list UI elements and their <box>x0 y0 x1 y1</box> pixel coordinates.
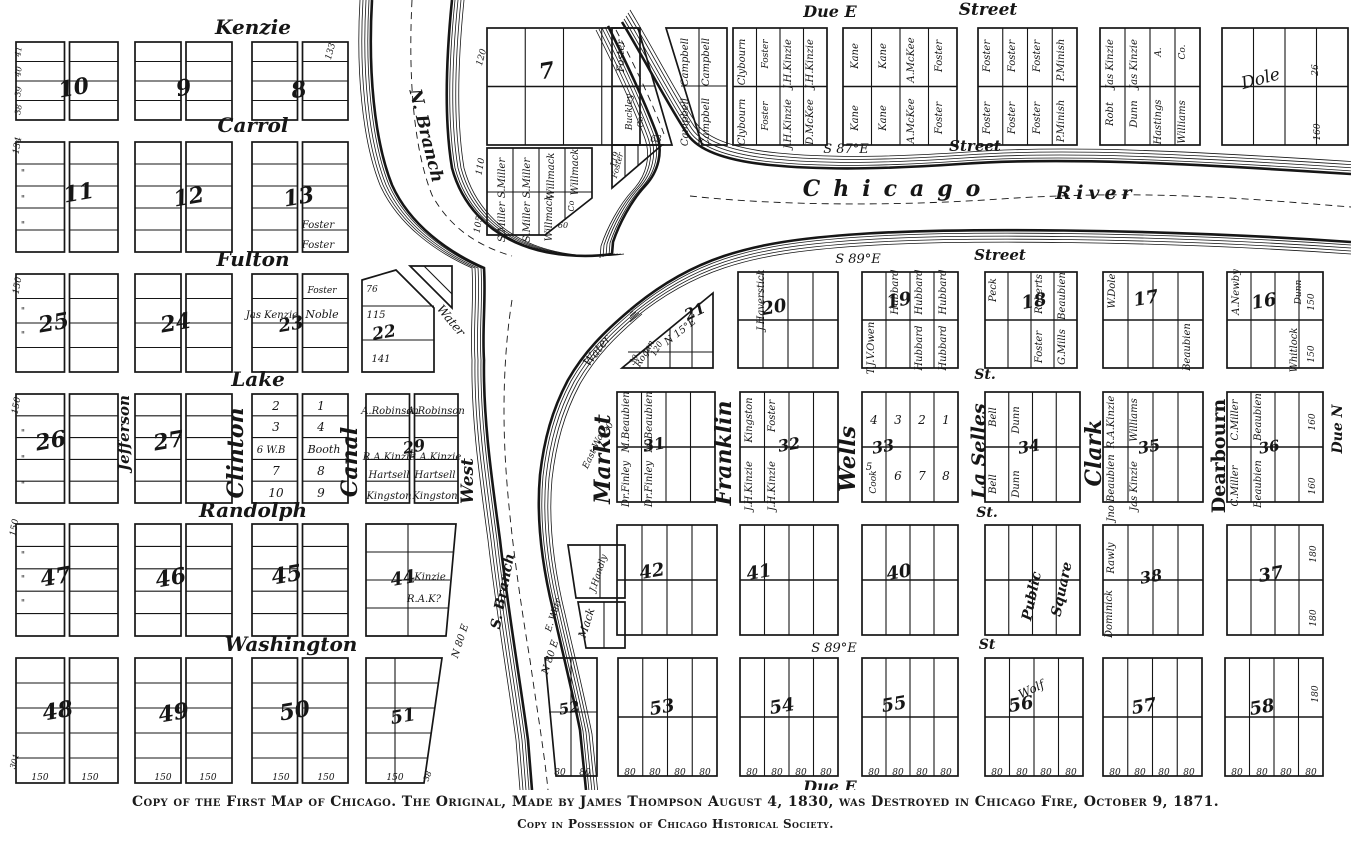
dimension-label: 150 <box>272 773 289 783</box>
lot-name: Co. <box>1178 44 1188 59</box>
block-number: 22 <box>370 321 398 345</box>
dimension-label: 133 <box>324 42 338 61</box>
street-label: Fulton <box>215 247 289 271</box>
bearing-label: S 89°E <box>811 641 857 656</box>
lot-name: D.McKee <box>805 99 816 146</box>
lot-name: Kinzie <box>413 572 446 583</box>
lot-name: Foster <box>1034 330 1045 364</box>
lot-name: J.H.Kinzie <box>805 39 816 91</box>
street-label: Lake <box>230 367 285 391</box>
lot-name: Dole <box>1238 64 1282 94</box>
dimension-label: 180 <box>1309 545 1319 562</box>
street-label: Wells <box>835 426 861 492</box>
lot-name: Hubbard <box>914 325 925 371</box>
block-number: 17 <box>1132 286 1161 311</box>
lot-name: M.Beaubien <box>621 391 632 453</box>
street-label: West <box>458 458 478 504</box>
dimension-label: 150 <box>154 773 171 783</box>
lot-number: 63 <box>650 135 662 145</box>
dimension-label: 134 <box>12 136 25 155</box>
dimension-label: 110 <box>475 157 488 176</box>
dimension-label: 40 <box>13 66 24 79</box>
dimension-label: 60 <box>558 221 568 230</box>
dimension-label: " <box>21 551 25 561</box>
dimension-label: 150 <box>81 773 98 783</box>
block-number: 25 <box>35 308 71 339</box>
lot-number: 8 <box>942 469 950 483</box>
block-outline <box>186 524 232 636</box>
dimension-label: 76 <box>366 285 378 295</box>
lot-name: Kane <box>878 43 889 70</box>
lot-name: Dunn <box>1129 100 1140 128</box>
lot-name: Hubbard <box>938 325 949 371</box>
dimension-label: 80 <box>554 768 566 778</box>
lot-name: A.McKee <box>906 98 917 144</box>
dimension-label: 80 <box>674 768 686 778</box>
lot-name: J.H.Kinzie <box>744 461 755 513</box>
block-number: 40 <box>885 560 914 585</box>
block-number: 35 <box>1136 435 1161 458</box>
dimension-label: 80 <box>771 768 783 778</box>
bearing-label: S 87°E <box>823 142 869 157</box>
lot-name: Foster <box>982 101 993 135</box>
block-number: 47 <box>38 562 73 593</box>
block-number: 52 <box>557 697 581 718</box>
lot-name: Clybourn <box>737 99 748 146</box>
lot-name: Beaubien <box>1253 460 1264 509</box>
river-label: S. Branch <box>488 552 518 630</box>
block-number: 34 <box>1016 435 1041 458</box>
street-label: Jefferson <box>115 395 133 474</box>
block-number: 58 <box>1248 695 1277 720</box>
river-bank <box>362 0 523 790</box>
lot-name: J.Haverstick <box>756 269 767 332</box>
lot-name: Willmack <box>546 153 557 200</box>
lot-name: Bell <box>988 407 999 428</box>
map-canvas: KenzieCarrolFultonLakeRandolphWashington… <box>0 0 1351 790</box>
block-number: 44 <box>389 566 417 591</box>
block-outline <box>70 394 119 503</box>
street-label: Clinton <box>223 407 249 498</box>
lot-name: Foster <box>761 101 771 132</box>
block-number: 41 <box>745 560 773 585</box>
dimension-label: 80 <box>746 768 758 778</box>
dimension-label: 80 <box>1040 768 1052 778</box>
block-number: 10 <box>56 73 91 104</box>
dimension-label: 150 <box>31 773 48 783</box>
lot-number: 7 <box>272 464 280 478</box>
lot-name: Foster <box>934 39 945 73</box>
street-marker: Street <box>949 137 1001 155</box>
lot-name: S.Miller <box>522 157 533 198</box>
street-marker: Due E <box>802 2 857 21</box>
lot-name: J.H.Kinzie <box>767 461 778 513</box>
lot-number: 8 <box>317 464 325 478</box>
block-number: 55 <box>880 692 908 717</box>
dimension-label: " <box>21 331 25 341</box>
lot-name: Kingston <box>744 397 755 443</box>
dimension-label: 160 <box>1313 123 1323 140</box>
dimension-label: 80 <box>795 768 807 778</box>
river-bank <box>365 0 526 790</box>
lot-name: Co <box>636 116 645 127</box>
block-number: 32 <box>776 433 801 456</box>
lot-name: C.Miller <box>1230 464 1241 506</box>
block-outline <box>70 658 119 783</box>
dimension-label: " <box>21 195 25 205</box>
dimension-label: 80 <box>940 768 952 778</box>
dimension-label: 80 <box>991 768 1003 778</box>
lot-number: 6 W.B <box>257 445 286 456</box>
dimension-label: 150 <box>1307 293 1317 310</box>
lot-name: J.H.Kinzie <box>783 99 794 151</box>
street-marker: St <box>979 637 996 653</box>
block-number: 27 <box>150 426 186 457</box>
block-number: 48 <box>40 696 75 727</box>
dimension-label: 26 <box>1311 64 1321 77</box>
lot-name: Dunn <box>1294 279 1304 305</box>
lot-name: Jas Kinzie <box>1105 39 1116 91</box>
lot-name: Dr.Finley <box>621 461 632 509</box>
dimension-label: " <box>21 575 25 585</box>
lot-name: Willmack <box>544 195 555 242</box>
lot-number: 10 <box>268 486 284 500</box>
dimension-label: 80 <box>1305 768 1317 778</box>
lot-name: Kingston <box>411 491 457 502</box>
dimension-label: " <box>21 221 25 231</box>
block-outline <box>303 524 349 636</box>
lot-name: Kane <box>850 105 861 132</box>
river-label: Chicago <box>803 176 994 202</box>
lot-name: Jno Beaubien <box>1106 454 1117 523</box>
lot-name: Hubbard <box>938 269 949 315</box>
lot-name: Willmack <box>570 149 581 196</box>
dimension-label: 150 <box>317 773 334 783</box>
dimension-label: 39 <box>13 86 24 98</box>
lot-number: 3 <box>894 413 902 427</box>
lot-name: T.J.V.Owen <box>866 322 877 375</box>
lot-name: Bell <box>988 474 999 495</box>
lot-number: 1 <box>317 399 325 413</box>
lot-name: R.A.Kinzie <box>408 452 462 463</box>
map-page: KenzieCarrolFultonLakeRandolphWashington… <box>0 0 1351 856</box>
lot-name: Foster <box>761 39 771 70</box>
river-centerline-dashed <box>690 195 1351 207</box>
lot-name: Williams <box>1129 398 1140 441</box>
lot-number: 4 <box>316 420 325 434</box>
lot-name: Hartsell <box>368 470 410 481</box>
block-number: 12 <box>171 182 206 213</box>
lot-name: C.Miller <box>1230 398 1241 440</box>
street-marker: Street <box>959 0 1018 20</box>
street-label: Randolph <box>198 498 307 522</box>
block-number: 16 <box>1250 289 1279 314</box>
dimension-label: 150 <box>11 396 24 415</box>
block-number: 49 <box>156 698 191 729</box>
block-number: 38 <box>1138 565 1163 588</box>
lot-number: 5 <box>866 462 872 473</box>
dimension-label: 301 <box>8 753 21 770</box>
lot-number: 4 <box>869 413 878 427</box>
lot-number: 7 <box>918 469 926 483</box>
dimension-label: 80 <box>1183 768 1195 778</box>
lot-name: G.Mills <box>1057 329 1068 365</box>
lot-name: Cook <box>869 470 879 493</box>
lot-line <box>424 266 452 294</box>
lot-name: Clybourn <box>737 39 748 86</box>
street-label: Carrol <box>218 113 289 137</box>
dimension-label: 80 <box>1280 768 1292 778</box>
block-number: 9 <box>174 74 194 102</box>
river-bank <box>545 312 636 790</box>
lot-name: Dunn <box>1011 470 1022 498</box>
block-outline <box>186 658 232 783</box>
dimension-label: 80 <box>892 768 904 778</box>
dimension-label: 80 <box>820 768 832 778</box>
lot-name: R.A.Kinzie <box>362 452 416 463</box>
block-number: 50 <box>277 696 312 727</box>
dimension-label: " <box>21 455 25 465</box>
lot-name: M.Beaubien <box>644 391 655 453</box>
lot-name: R.A.K? <box>406 594 442 605</box>
lot-name: Campbell <box>701 38 712 86</box>
dimension-label: 80 <box>699 768 711 778</box>
lot-name: Williams <box>1177 100 1188 143</box>
lot-name: Foster <box>1032 39 1043 73</box>
lot-name: Hubbard <box>890 269 901 315</box>
lot-name: Campbell <box>680 38 691 86</box>
lot-name: Jas Kinzie <box>1129 39 1140 91</box>
block-number: 11 <box>61 178 96 209</box>
dimension-label: 80 <box>1016 768 1028 778</box>
dimension-label: 150 <box>1307 345 1317 362</box>
caption-line2: Copy in Possession of Chicago Historical… <box>0 817 1351 831</box>
river-label: River <box>1054 182 1136 204</box>
lot-name: Beaubien <box>1253 393 1264 442</box>
block-number: 51 <box>389 704 417 729</box>
lot-name: Co <box>567 200 576 211</box>
lot-number: 2 <box>917 413 926 427</box>
lot-name: Dominick <box>1104 590 1115 639</box>
block-number: 46 <box>153 563 188 594</box>
lot-name: Roberts <box>1034 274 1045 315</box>
street-marker: St. <box>976 505 997 521</box>
street-label: E. Watr <box>544 597 565 634</box>
lot-name: J.H.Kinzie <box>783 39 794 91</box>
lot-name: Rawly <box>1106 542 1117 574</box>
lot-name: Foster <box>1032 101 1043 135</box>
dimension-label: 160 <box>1308 477 1318 494</box>
dimension-label: 105 <box>473 215 486 234</box>
block-number: 26 <box>32 426 68 457</box>
block-outline <box>70 524 119 636</box>
lot-name: Foster <box>301 240 335 251</box>
dimension-label: 38 <box>13 104 24 116</box>
street-label: Canal <box>337 427 363 497</box>
river-label: N. Branch <box>404 86 447 185</box>
lot-number: 1 <box>942 413 950 427</box>
lot-name: Whitlock <box>1289 328 1300 373</box>
street-marker: Due N <box>1330 403 1346 454</box>
dimension-label: 180 <box>1311 685 1321 702</box>
lot-name: Hastings <box>1153 99 1164 145</box>
dimension-label: 80 <box>1134 768 1146 778</box>
dimension-label: 150 <box>12 276 25 295</box>
lot-name: Dr.Finley <box>644 461 655 509</box>
lot-name: Square <box>1048 560 1075 618</box>
lot-name: S.Miller <box>497 201 508 242</box>
lot-name: Kane <box>878 105 889 132</box>
lot-name: Hartsell <box>414 470 456 481</box>
lot-name: A. <box>1154 47 1164 57</box>
lot-name: Foster <box>934 101 945 135</box>
street-marker: St. <box>974 367 995 383</box>
dimension-label: 150 <box>386 773 403 783</box>
lot-name: Campbell <box>680 98 691 146</box>
dimension-label: 80 <box>1065 768 1077 778</box>
block-number: 13 <box>281 182 316 213</box>
lot-name: Foster <box>301 220 335 231</box>
dimension-label: 160 <box>1308 413 1318 430</box>
lot-name: Foster <box>982 39 993 73</box>
lot-name: Hubbard <box>914 269 925 315</box>
dimension-label: 41 <box>13 46 24 59</box>
lot-name: S.Miller <box>522 201 533 242</box>
lot-number: 6 <box>894 469 902 483</box>
dimension-label: 80 <box>1231 768 1243 778</box>
lot-name: Public <box>1019 570 1045 623</box>
lot-name: P.Minish <box>1056 39 1067 83</box>
street-label: Washington <box>225 632 358 656</box>
block-number: 53 <box>648 695 676 720</box>
dimension-label: 115 <box>366 310 385 321</box>
dimension-label: 80 <box>1109 768 1121 778</box>
block-number: 33 <box>870 435 895 458</box>
street-label: La Selles <box>968 403 990 500</box>
dimension-label: 150 <box>199 773 216 783</box>
block-number: 37 <box>1257 562 1286 587</box>
lot-name: Jas Kenzie <box>244 310 298 321</box>
dimension-label: 80 <box>579 768 591 778</box>
lot-name: A.Robinson <box>406 406 465 417</box>
lot-name: Peck <box>988 278 999 303</box>
lot-name: Jas Kinzie <box>1129 461 1140 513</box>
street-label: Clark <box>1081 420 1107 487</box>
lot-name: Kingston <box>365 491 411 502</box>
dimension-label: 80 <box>1158 768 1170 778</box>
lot-name: Foster <box>306 286 337 296</box>
lot-name: Foster <box>1007 39 1018 73</box>
dimension-label: 141 <box>371 354 390 365</box>
lot-name: Robt <box>1105 101 1116 127</box>
block-number: 45 <box>269 560 304 591</box>
lot-name: Dunn <box>1011 406 1022 434</box>
street-label: Kenzie <box>214 15 291 39</box>
lot-name: S.Miller <box>497 157 508 198</box>
lot-name: Campbell <box>701 98 712 146</box>
dimension-label: " <box>21 599 25 609</box>
lot-name: A.McKee <box>906 37 917 83</box>
dimension-label: 80 <box>1256 768 1268 778</box>
street-marker: Due E <box>802 777 857 790</box>
lot-name: Kane <box>850 43 861 70</box>
dimension-label: 38 <box>422 770 434 783</box>
lot-name: Buckley <box>625 93 635 131</box>
lot-name: Booth <box>307 443 341 456</box>
street-label: Dearbourn <box>1208 399 1230 514</box>
lot-name: Beaubien <box>1057 272 1068 321</box>
dimension-label: " <box>21 169 25 179</box>
lot-name: P.Minish <box>1056 100 1067 144</box>
lot-number: 9 <box>317 486 325 500</box>
lot-number: 3 <box>272 420 280 434</box>
bearing-label: S 89°E <box>835 252 881 267</box>
dimension-label: 80 <box>868 768 880 778</box>
dimension-label: " <box>21 307 25 317</box>
dimension-label: " <box>21 429 25 439</box>
street-label: Franklin <box>711 400 737 506</box>
lot-name: R.A.Kinzie <box>1106 396 1117 450</box>
dimension-label: 80 <box>624 768 636 778</box>
block-number: 24 <box>157 308 193 339</box>
block-number: 57 <box>1130 694 1159 719</box>
block-number: 42 <box>638 559 666 584</box>
lot-name: Foster <box>616 39 627 73</box>
river-bank <box>542 311 633 790</box>
lot-number: 2 <box>271 399 280 413</box>
lot-name: Noble <box>304 308 339 321</box>
street-marker: Street <box>974 246 1026 264</box>
dimension-label: 180 <box>1309 609 1319 626</box>
lot-name: A.Newby <box>1231 269 1242 316</box>
lot-name: Foster <box>1007 101 1018 135</box>
lot-name: W.Dole <box>1107 273 1118 308</box>
map-caption: Copy of the First Map of Chicago. The Or… <box>0 794 1351 831</box>
street-label: N 80 E <box>450 622 472 660</box>
dimension-label: 80 <box>649 768 661 778</box>
block-number: 7 <box>537 57 557 85</box>
block-number: 54 <box>768 694 796 719</box>
lot-name: Beaubien <box>1182 323 1193 372</box>
dimension-label: " <box>21 481 25 491</box>
dimension-label: 80 <box>916 768 928 778</box>
dimension-label: 150 <box>9 518 22 537</box>
caption-line1: Copy of the First Map of Chicago. The Or… <box>0 794 1351 810</box>
lot-name: J.Handly <box>588 553 610 595</box>
lot-name: Foster <box>767 399 778 433</box>
